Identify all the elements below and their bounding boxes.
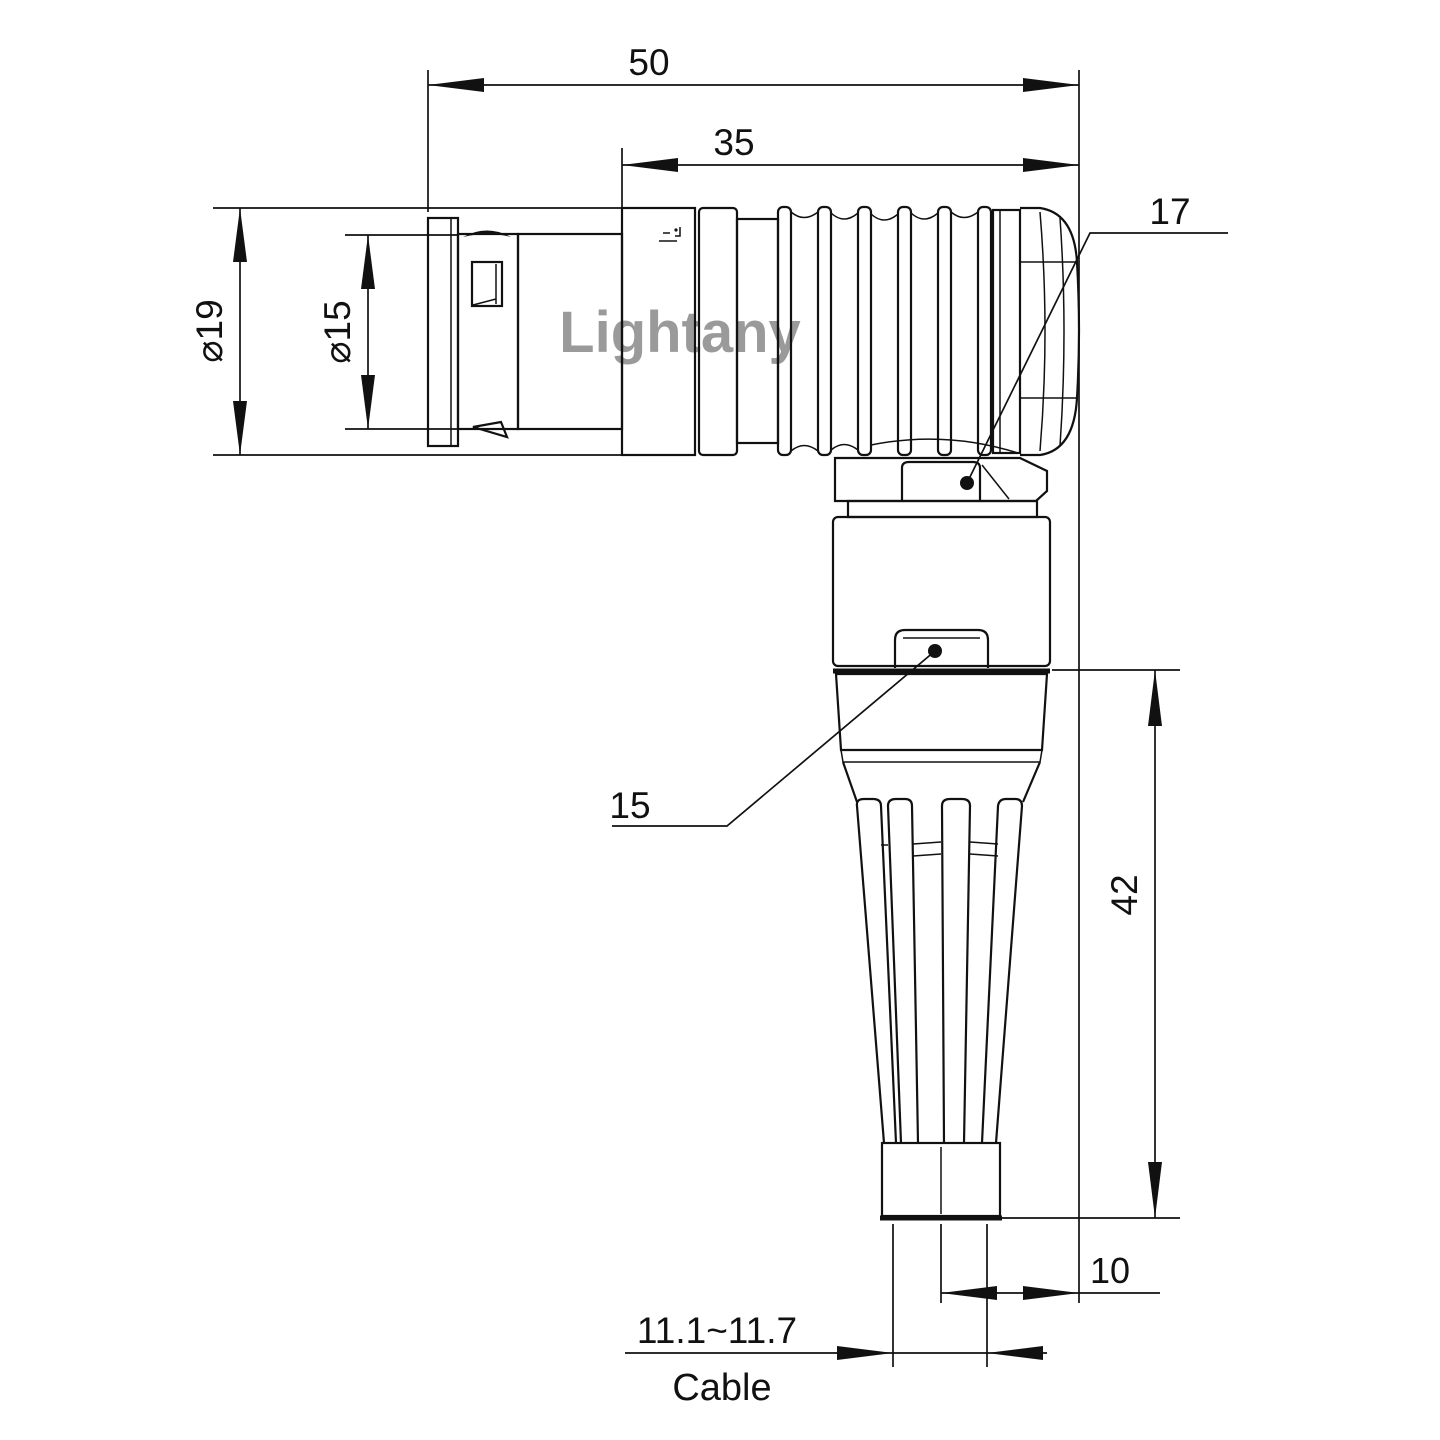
dim-dia15: ⌀15 bbox=[317, 235, 458, 429]
keyway-detail bbox=[473, 264, 496, 305]
dim-42-label: 42 bbox=[1104, 874, 1145, 915]
elbow-body bbox=[833, 458, 1050, 671]
callout-15-label: 15 bbox=[609, 785, 650, 826]
technical-drawing-svg: Lightany bbox=[0, 0, 1440, 1440]
strain-relief-boot bbox=[836, 674, 1047, 1143]
part-marking bbox=[659, 227, 680, 241]
front-rim bbox=[428, 218, 458, 446]
cable-end-cap bbox=[880, 1143, 1002, 1218]
barrel bbox=[833, 517, 1050, 666]
dim-cable-range: 11.1~11.7 Cable bbox=[625, 1224, 1047, 1409]
dim-42: 42 bbox=[1002, 670, 1180, 1218]
latch-sleeve bbox=[458, 234, 518, 429]
callout-17: 17 bbox=[967, 191, 1228, 483]
dim-50-label: 50 bbox=[628, 42, 669, 83]
keyway-window bbox=[472, 262, 502, 306]
boot-fin bbox=[942, 799, 970, 1143]
elbow-flange bbox=[835, 458, 1047, 501]
dim-35-label: 35 bbox=[713, 122, 754, 163]
callout-17-label: 17 bbox=[1149, 191, 1190, 232]
dim-dia19-label: ⌀19 bbox=[189, 299, 230, 362]
key-mark bbox=[463, 231, 511, 238]
boot-fin bbox=[888, 799, 918, 1143]
dim-dia19: ⌀19 bbox=[189, 208, 622, 455]
drawing-page: Lightany bbox=[0, 0, 1440, 1440]
hex-nut bbox=[993, 208, 1079, 455]
dim-35: 35 bbox=[622, 122, 1079, 230]
boot-fin bbox=[982, 799, 1022, 1143]
neck-ring bbox=[848, 501, 1037, 517]
cable-range-label: 11.1~11.7 bbox=[637, 1310, 797, 1351]
dim-10-label: 10 bbox=[1090, 1250, 1130, 1291]
callout-15: 15 bbox=[609, 651, 935, 826]
cable-caption: Cable bbox=[672, 1367, 771, 1409]
dim-10: 10 bbox=[941, 1224, 1160, 1303]
dim-dia15-label: ⌀15 bbox=[317, 300, 358, 363]
flex-relief bbox=[778, 207, 1018, 455]
watermark-text: Lightany bbox=[559, 300, 801, 365]
